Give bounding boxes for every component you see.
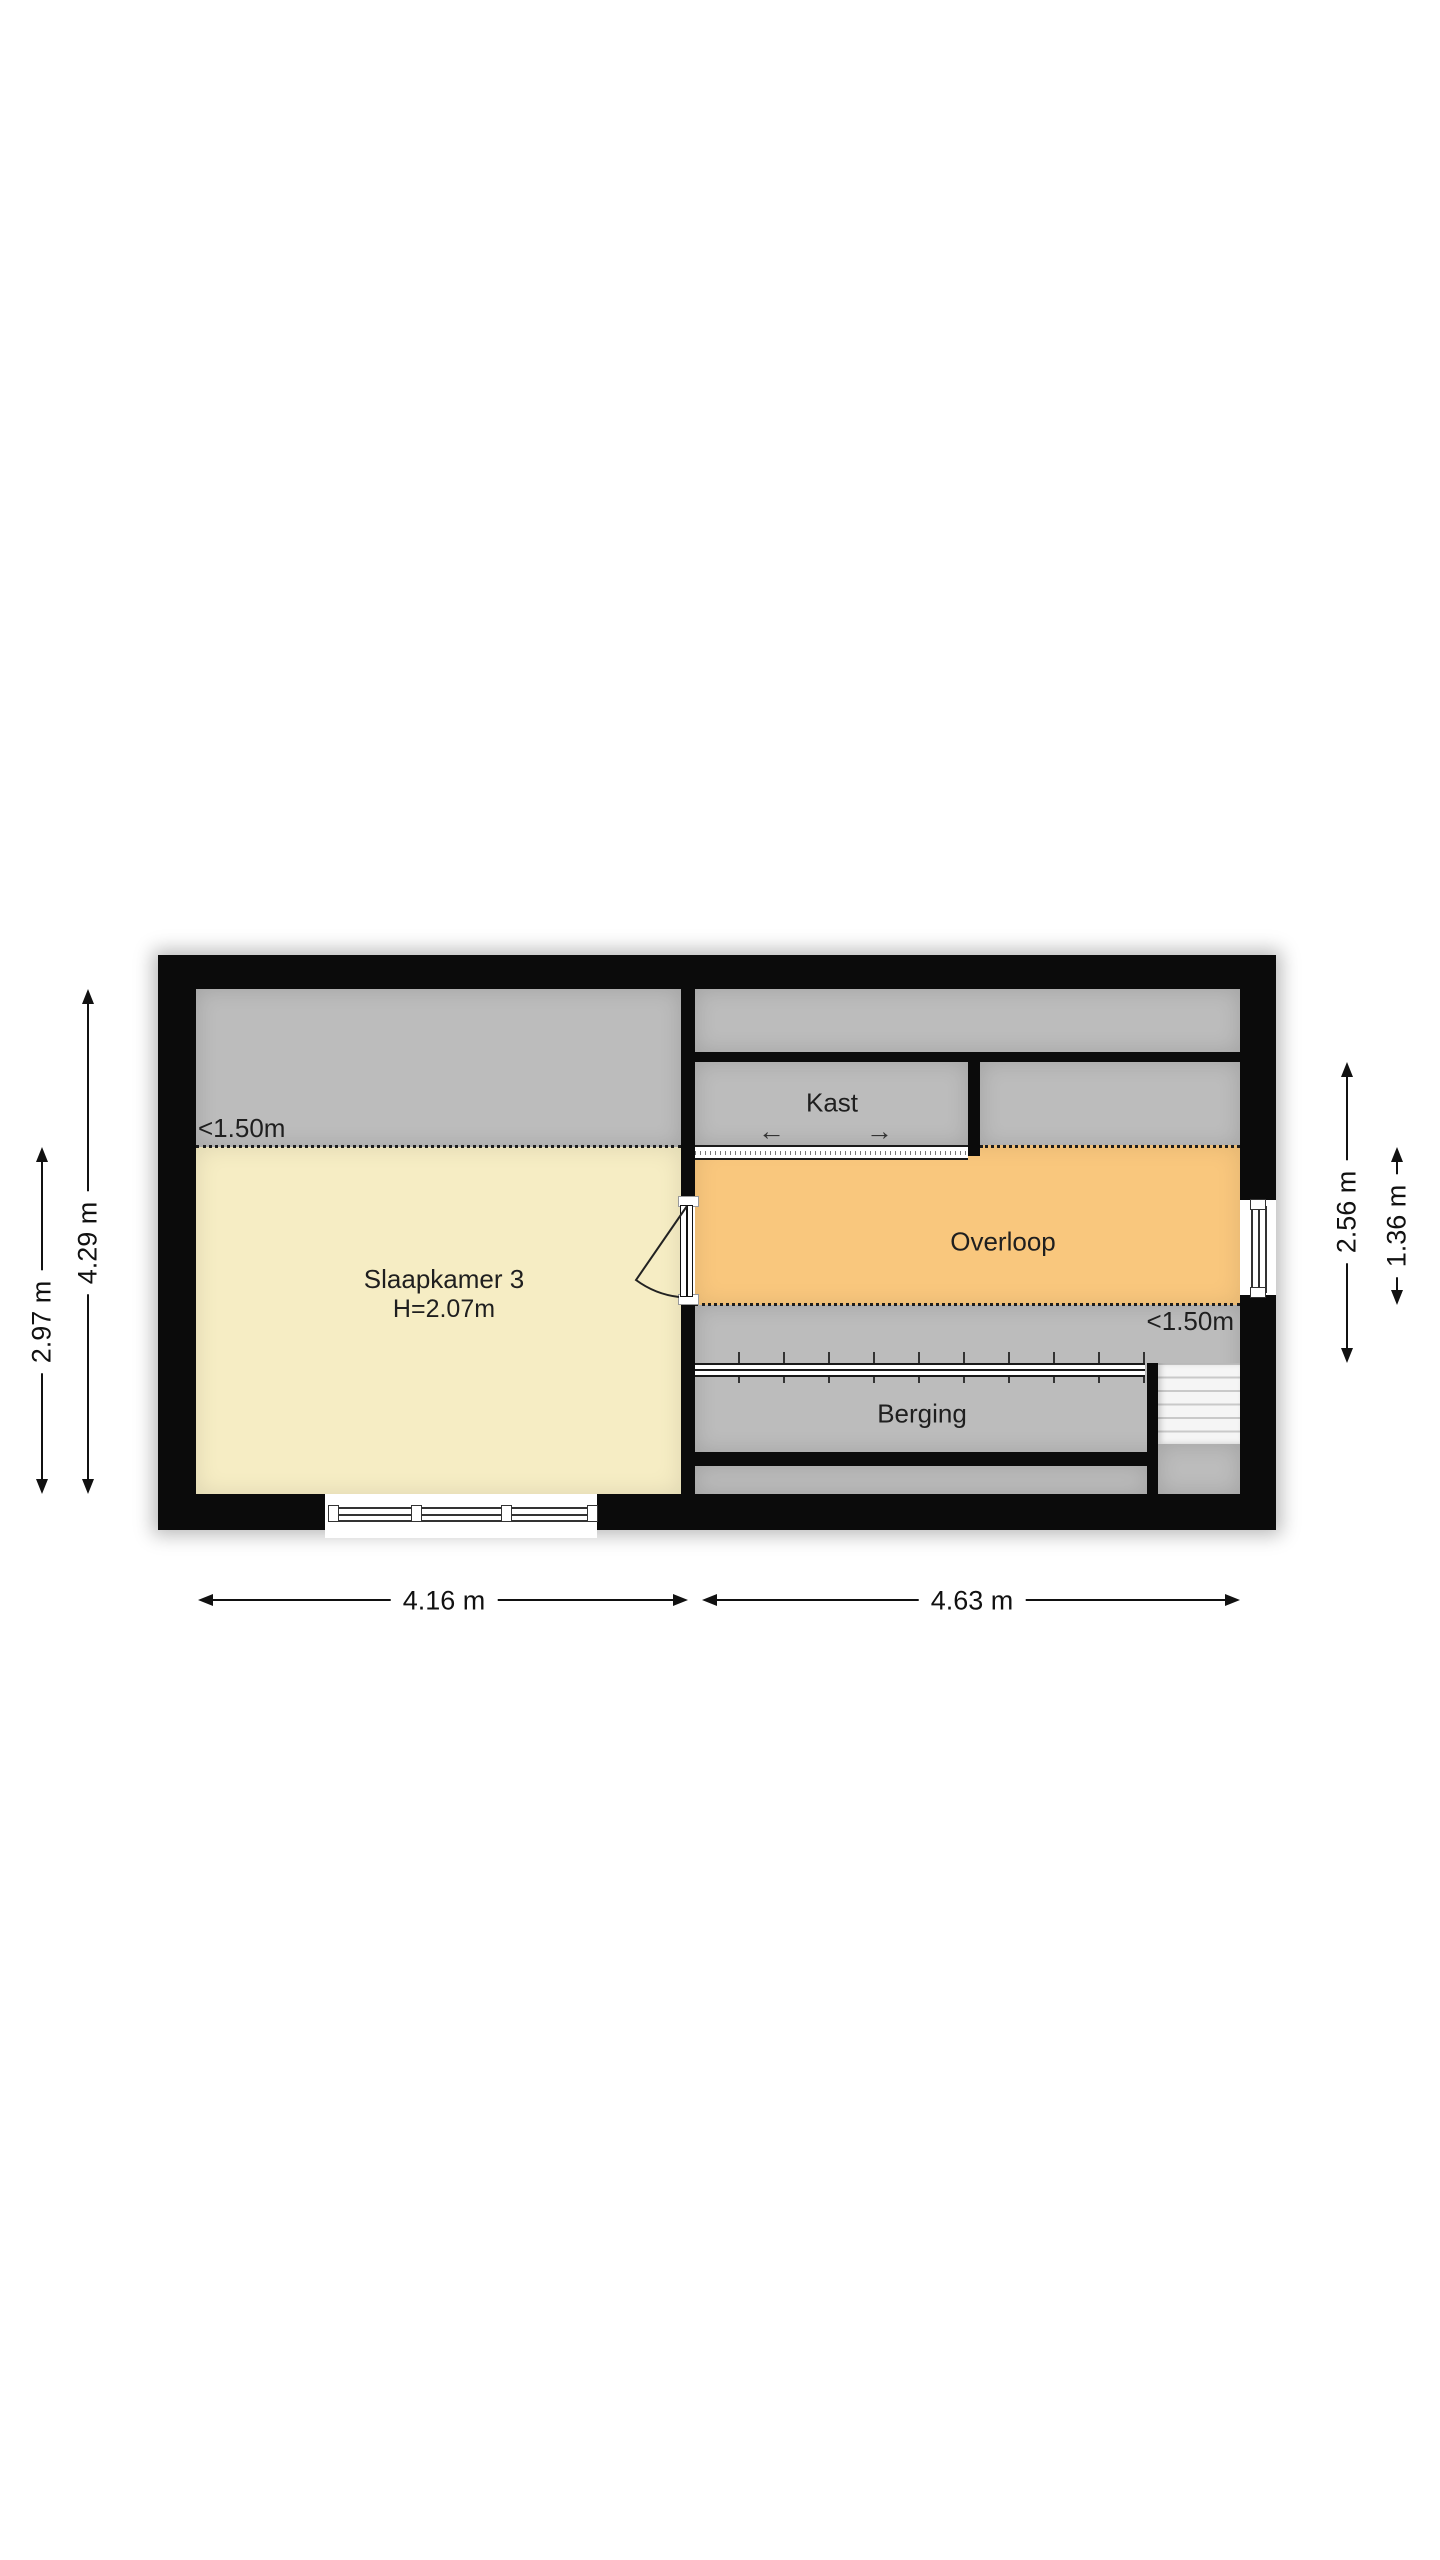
label-slaapkamer3-name: Slaapkamer 3	[364, 1264, 524, 1295]
low-ceiling-line-mid-right	[980, 1145, 1240, 1148]
dim-label-left-total: 4.29 m	[71, 1192, 106, 1295]
label-berging: Berging	[877, 1399, 967, 1430]
zone-below-stairs	[1158, 1444, 1240, 1494]
low-ceiling-line-left	[196, 1145, 681, 1148]
window-bottom-frame	[336, 1507, 592, 1522]
wall-berging-bottom	[695, 1452, 1158, 1466]
room-overloop	[695, 1145, 1240, 1305]
label-slaapkamer3: Slaapkamer 3 H=2.07m	[364, 1264, 524, 1324]
dim-label-right-overloop: 1.36 m	[1380, 1175, 1415, 1278]
label-kast: Kast	[806, 1088, 858, 1119]
wall-divider-upper	[681, 989, 695, 1196]
window-bottom-mullion2	[501, 1505, 512, 1522]
label-overloop: Overloop	[950, 1227, 1056, 1258]
window-bottom-mullion1	[411, 1505, 422, 1522]
window-right-cap-bottom	[1250, 1287, 1266, 1298]
window-right-cap-top	[1250, 1199, 1266, 1210]
room-top-strip	[695, 989, 1240, 1052]
railing	[695, 1363, 1145, 1377]
dim-label-left-bedroom: 2.97 m	[25, 1271, 60, 1374]
wall-below-top-strip	[695, 1052, 1240, 1062]
label-slaapkamer3-height: H=2.07m	[364, 1295, 524, 1324]
dim-label-bottom-left: 4.16 m	[391, 1586, 498, 1617]
stairs	[1158, 1363, 1240, 1444]
label-low-ceiling-right: <1.50m	[1147, 1306, 1234, 1337]
zone-right-of-kast	[980, 1062, 1240, 1147]
window-bottom-cap-right	[587, 1505, 598, 1522]
wall-outer-left	[158, 955, 196, 1530]
kast-slide-right-arrow-icon: →	[866, 1116, 893, 1147]
dim-label-right-section: 2.56 m	[1330, 1161, 1365, 1264]
wall-kast-right	[968, 1062, 980, 1156]
kast-sliding-door	[695, 1145, 968, 1160]
kast-slide-left-arrow-icon: ←	[758, 1116, 785, 1147]
wall-divider-lower	[681, 1303, 695, 1494]
window-right-frame	[1251, 1206, 1267, 1293]
dim-label-bottom-right: 4.63 m	[919, 1586, 1026, 1617]
floorplan-canvas: Slaapkamer 3 H=2.07m Kast Overloop Bergi…	[0, 0, 1440, 2560]
zone-bottom-strip	[695, 1466, 1147, 1494]
window-bottom-cap-left	[328, 1505, 339, 1522]
wall-berging-right	[1147, 1363, 1158, 1494]
door-leaf	[680, 1205, 693, 1297]
wall-outer-top	[158, 955, 1276, 989]
label-low-ceiling-left: <1.50m	[198, 1113, 285, 1144]
